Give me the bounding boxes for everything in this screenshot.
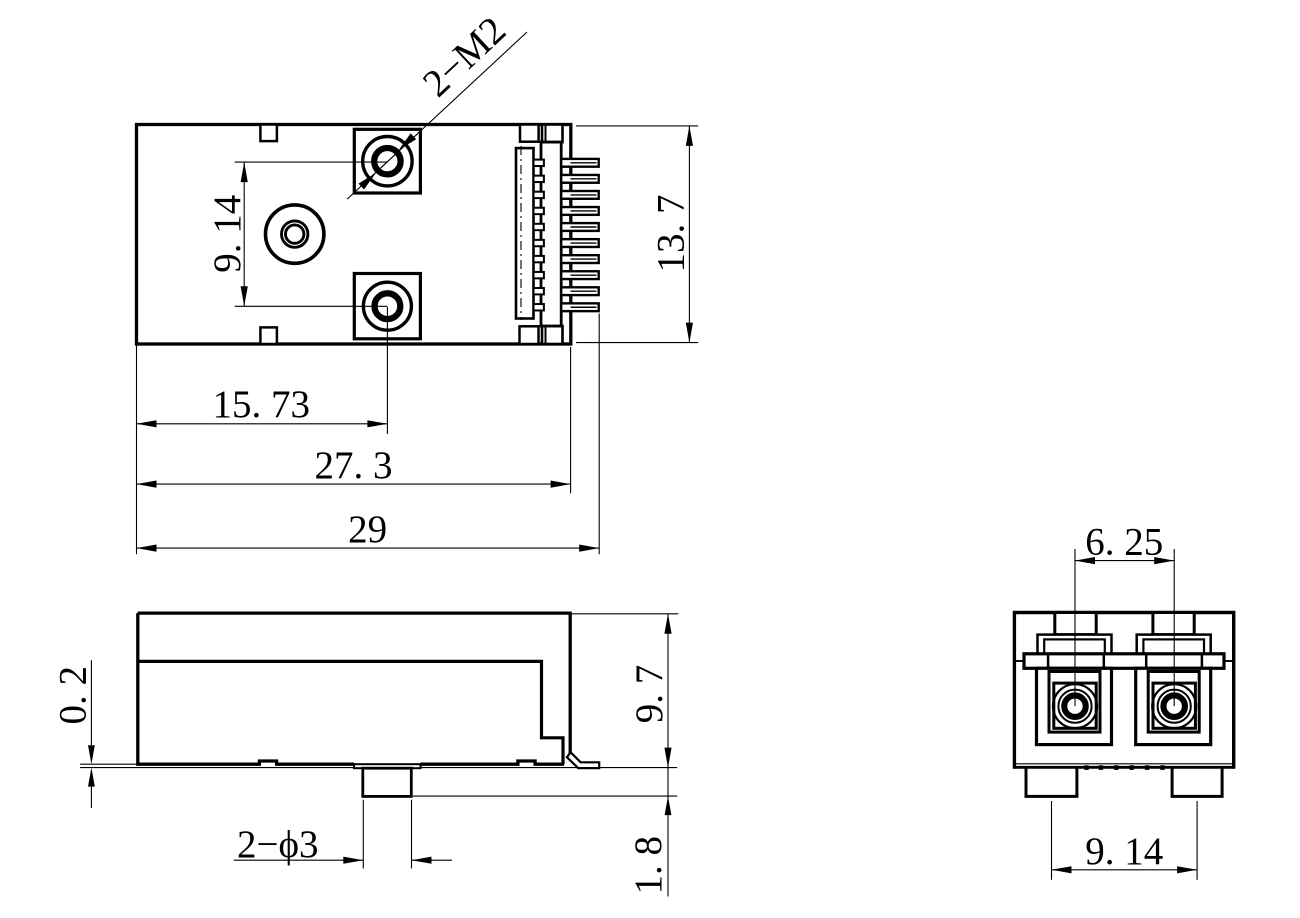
svg-text:0. 2: 0. 2 xyxy=(51,666,94,725)
svg-text:13. 7: 13. 7 xyxy=(650,195,693,273)
svg-text:9. 14: 9. 14 xyxy=(206,195,249,273)
svg-text:15. 73: 15. 73 xyxy=(213,383,311,426)
svg-text:1. 8: 1. 8 xyxy=(627,836,670,895)
svg-text:9. 14: 9. 14 xyxy=(1085,830,1163,873)
svg-text:2−ϕ3: 2−ϕ3 xyxy=(237,823,319,866)
svg-text:9. 7: 9. 7 xyxy=(628,665,671,724)
svg-text:29: 29 xyxy=(348,508,387,551)
svg-text:27. 3: 27. 3 xyxy=(315,444,393,487)
svg-text:6. 25: 6. 25 xyxy=(1085,521,1163,564)
